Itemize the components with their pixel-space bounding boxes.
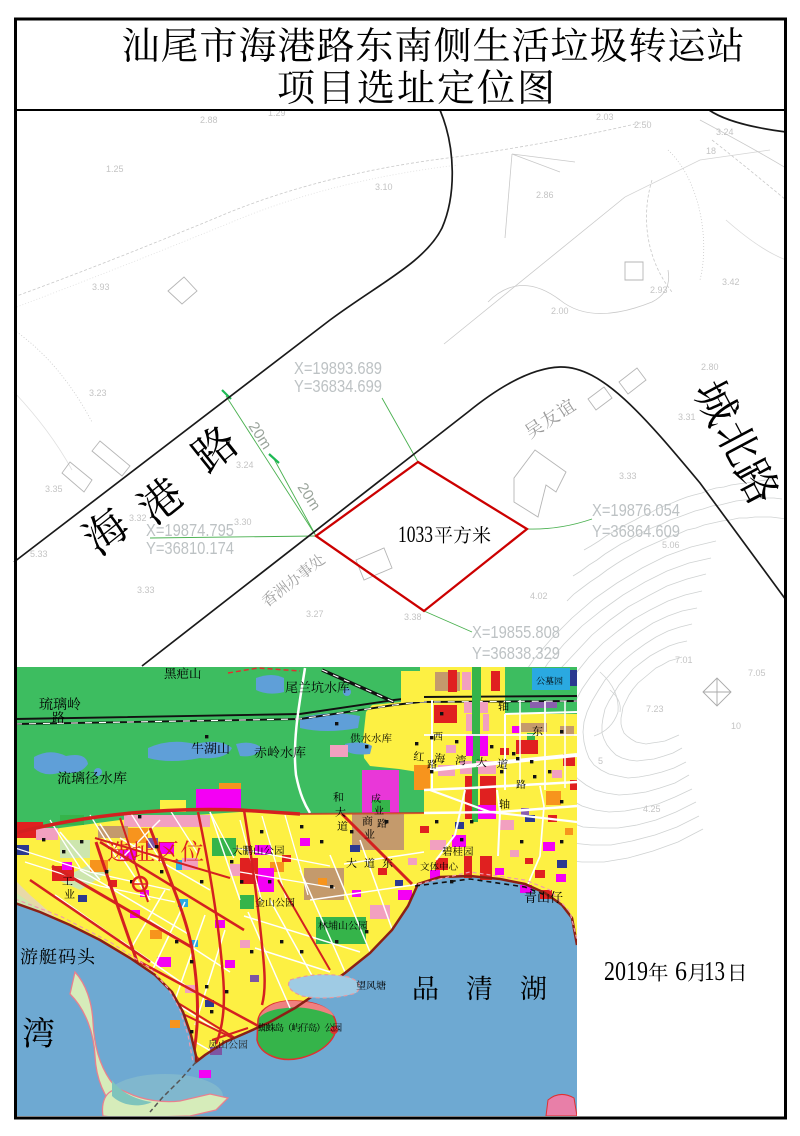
svg-text:3.30: 3.30 — [234, 517, 252, 527]
svg-text:18: 18 — [706, 146, 716, 156]
svg-text:3.31: 3.31 — [678, 412, 696, 422]
svg-text:4.25: 4.25 — [643, 804, 661, 814]
svg-text:2.03: 2.03 — [596, 112, 614, 122]
svg-text:13: 13 — [704, 956, 725, 986]
svg-text:Y=36864.609: Y=36864.609 — [592, 521, 680, 541]
svg-text:2.80: 2.80 — [701, 362, 719, 372]
svg-text:2.50: 2.50 — [634, 120, 652, 130]
svg-text:3.27: 3.27 — [306, 609, 324, 619]
svg-text:3.38: 3.38 — [404, 612, 422, 622]
svg-text:4.02: 4.02 — [530, 591, 548, 601]
svg-text:7.23: 7.23 — [646, 704, 664, 714]
svg-text:Y=36834.699: Y=36834.699 — [294, 376, 382, 396]
svg-text:X=19855.808: X=19855.808 — [472, 622, 560, 642]
svg-text:3.35: 3.35 — [45, 484, 63, 494]
svg-text:3.33: 3.33 — [619, 471, 637, 481]
svg-text:5.06: 5.06 — [662, 540, 680, 550]
svg-text:1033: 1033 — [398, 522, 433, 547]
svg-text:X=19876.054: X=19876.054 — [592, 500, 680, 520]
svg-text:Y=36838.329: Y=36838.329 — [472, 643, 560, 663]
svg-text:5.33: 5.33 — [30, 549, 48, 559]
svg-text:3.23: 3.23 — [89, 388, 107, 398]
svg-text:3.42: 3.42 — [722, 277, 740, 287]
svg-text:3.33: 3.33 — [137, 585, 155, 595]
svg-text:7.01: 7.01 — [675, 655, 693, 665]
svg-text:6: 6 — [675, 956, 687, 986]
svg-text:3.24: 3.24 — [236, 460, 254, 470]
svg-text:1.25: 1.25 — [106, 164, 124, 174]
svg-text:3.10: 3.10 — [375, 182, 393, 192]
svg-text:7.05: 7.05 — [748, 668, 766, 678]
svg-text:Y=36810.174: Y=36810.174 — [146, 538, 234, 558]
svg-text:2.00: 2.00 — [551, 306, 569, 316]
svg-text:2.86: 2.86 — [536, 190, 554, 200]
svg-text:3.24: 3.24 — [716, 127, 734, 137]
svg-text:3.93: 3.93 — [92, 282, 110, 292]
svg-text:10: 10 — [731, 721, 741, 731]
svg-text:5: 5 — [598, 756, 603, 766]
svg-text:2019: 2019 — [604, 956, 648, 986]
svg-text:2.93: 2.93 — [650, 285, 668, 295]
svg-text:X=19893.689: X=19893.689 — [294, 358, 382, 378]
svg-text:2.88: 2.88 — [200, 115, 218, 125]
svg-text:3.32: 3.32 — [129, 513, 147, 523]
